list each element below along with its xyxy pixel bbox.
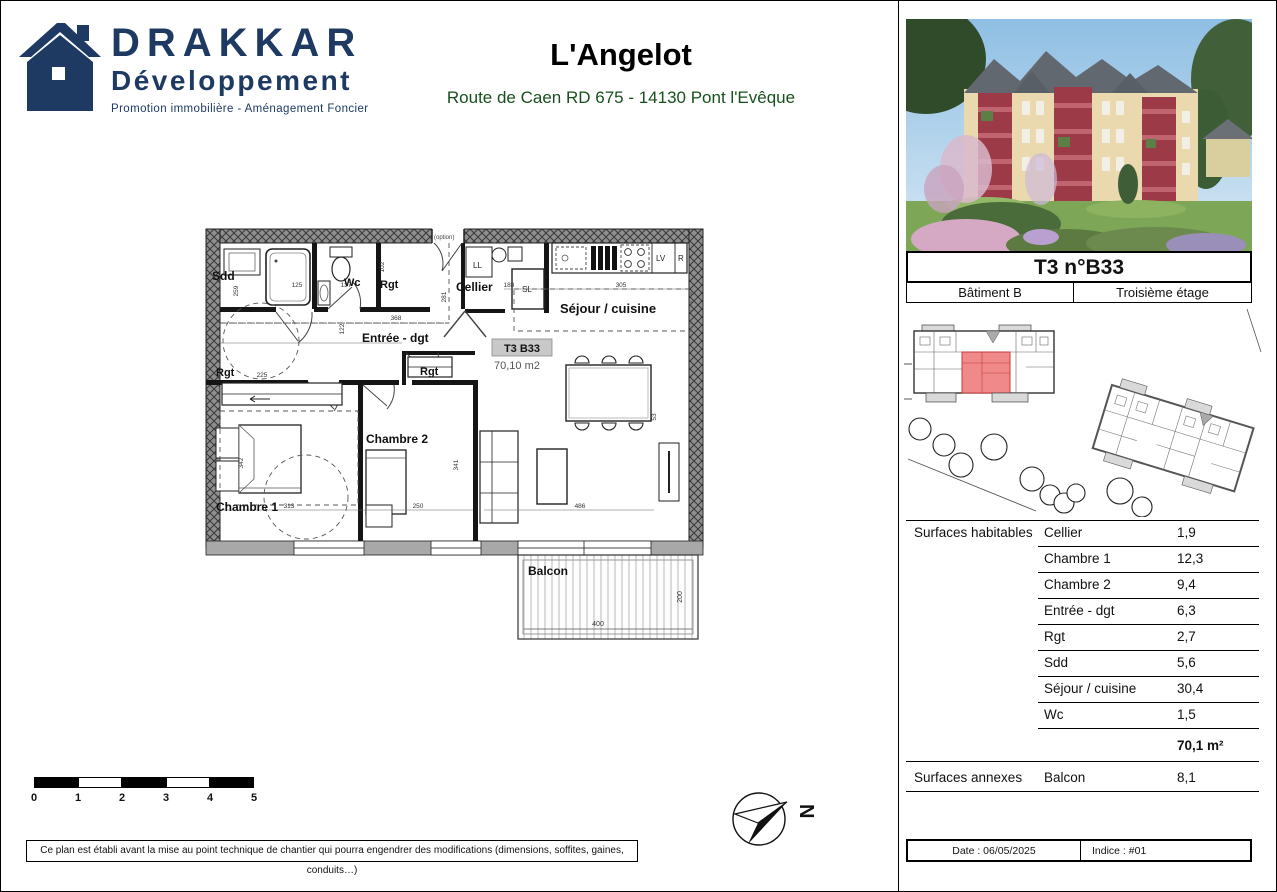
- scale-label: 3: [160, 792, 172, 804]
- room-label-sejour: Séjour / cuisine: [560, 301, 656, 316]
- surface-area: 1,9: [1177, 525, 1196, 540]
- unit-label: T3 B33: [504, 343, 540, 355]
- window: [294, 541, 364, 555]
- surface-area: 12,3: [1177, 551, 1203, 566]
- dim-125: 125: [292, 282, 303, 289]
- surface-area: 30,4: [1177, 681, 1203, 696]
- dim-341: 341: [453, 459, 460, 470]
- brand-name: DRAKKAR: [111, 23, 362, 63]
- scale-label: 5: [248, 792, 260, 804]
- dim-188: 188: [504, 282, 515, 289]
- panel-divider: [898, 1, 899, 892]
- footer-indice: Indice : #01: [1092, 841, 1252, 862]
- scale-segment: [122, 777, 166, 788]
- surfaces-annexes-label: Surfaces annexes: [914, 770, 1022, 785]
- page-title: L'Angelot: [381, 37, 861, 73]
- surfaces-habitables-label: Surfaces habitables: [914, 525, 1033, 540]
- option-note: (option): [434, 235, 454, 241]
- room-label-rgt-left: Rgt: [216, 367, 235, 379]
- plan-sheet: DRAKKAR Développement Promotion immobili…: [0, 0, 1277, 892]
- scale-bar: 0 1 2 3 4 5: [34, 777, 264, 811]
- footer-date: Date : 06/05/2025: [908, 841, 1080, 862]
- appliance-r: R: [678, 254, 684, 263]
- surface-room: Chambre 1: [1044, 551, 1111, 566]
- kitchen-counter: LV R: [552, 243, 687, 273]
- surface-room: Séjour / cuisine: [1044, 681, 1136, 696]
- surface-area: 1,5: [1177, 707, 1196, 722]
- brand-logo: DRAKKAR Développement Promotion immobili…: [19, 15, 379, 120]
- annexe-area: 8,1: [1177, 770, 1196, 785]
- dim-137: 137: [341, 282, 352, 289]
- room-label-sdd: Sdd: [212, 269, 235, 283]
- bedroom2-furniture: [366, 450, 406, 527]
- balcony: 400 200 Balcon: [518, 555, 698, 639]
- surface-area: 2,7: [1177, 629, 1196, 644]
- bathroom-fixtures: [224, 247, 352, 305]
- room-label-balcon: Balcon: [528, 564, 568, 578]
- floor-cell: Troisième étage: [1073, 282, 1252, 303]
- dim-400: 400: [592, 621, 604, 628]
- floor-plan: 400 200 Balcon: [194, 225, 716, 655]
- surface-room: Cellier: [1044, 525, 1082, 540]
- dim-281: 281: [441, 291, 448, 302]
- appliance-ll: LL: [473, 261, 482, 270]
- dim-259: 259: [233, 285, 240, 296]
- surfaces-total: 70,1 m²: [1177, 738, 1224, 753]
- room-label-chambre1: Chambre 1: [216, 500, 278, 514]
- room-label-cellier: Cellier: [456, 280, 493, 294]
- scale-label: 1: [72, 792, 84, 804]
- annexe-room: Balcon: [1044, 770, 1085, 785]
- surface-area: 5,6: [1177, 655, 1196, 670]
- closet-rgt-left: [222, 383, 342, 405]
- footer-box: Date : 06/05/2025 Indice : #01: [906, 839, 1252, 862]
- dim-200: 200: [677, 591, 684, 603]
- page-subtitle: Route de Caen RD 675 - 14130 Pont l'Evêq…: [381, 88, 861, 108]
- dim-225: 225: [257, 372, 268, 379]
- scale-segment: [166, 777, 210, 788]
- surface-room: Wc: [1044, 707, 1064, 722]
- scale-segment: [34, 777, 78, 788]
- scale-label: 4: [204, 792, 216, 804]
- dim-313: 313: [284, 503, 295, 510]
- north-letter: N: [795, 804, 816, 818]
- dim-250: 250: [413, 503, 424, 510]
- window: [431, 541, 481, 555]
- unit-tag: T3 B33 70,10 m2: [492, 339, 552, 372]
- surfaces-table: Surfaces habitables Cellier 1,9 Chambre …: [906, 520, 1259, 792]
- house-logo-icon: [19, 17, 101, 113]
- dim-305: 305: [616, 282, 627, 289]
- scale-label: 2: [116, 792, 128, 804]
- building-photo: [906, 19, 1252, 251]
- disclaimer-note: Ce plan est établi avant la mise au poin…: [26, 840, 638, 862]
- north-arrow: N: [726, 786, 816, 856]
- site-plan: [904, 307, 1264, 517]
- living-furniture: [480, 356, 679, 523]
- dim-53: 53: [651, 413, 658, 421]
- room-label-chambre2: Chambre 2: [366, 432, 428, 446]
- surface-room: Sdd: [1044, 655, 1068, 670]
- surface-area: 6,3: [1177, 603, 1196, 618]
- unit-title-box: T3 n°B33: [906, 251, 1252, 283]
- dim-368: 368: [391, 315, 402, 322]
- bedroom1-furniture: [216, 425, 301, 493]
- dim-486: 486: [575, 503, 586, 510]
- brand-division: Développement: [111, 67, 352, 95]
- bottom-facade: [206, 541, 703, 555]
- site-building-b: [914, 325, 1054, 402]
- surface-room: Rgt: [1044, 629, 1065, 644]
- brand-tagline: Promotion immobilière - Aménagement Fonc…: [111, 103, 369, 115]
- dim-122: 122: [339, 323, 346, 334]
- surface-room: Entrée - dgt: [1044, 603, 1115, 618]
- scale-label: 0: [28, 792, 40, 804]
- unit-area: 70,10 m2: [494, 360, 540, 372]
- balcony-door: [518, 541, 651, 555]
- room-label-rgt-top: Rgt: [380, 279, 399, 291]
- surface-room: Chambre 2: [1044, 577, 1111, 592]
- dim-342: 342: [238, 457, 245, 468]
- appliance-sl: SL: [522, 285, 532, 294]
- scale-segment: [210, 777, 254, 788]
- room-label-rgt-mid: Rgt: [420, 366, 439, 378]
- scale-segment: [78, 777, 122, 788]
- appliance-lv: LV: [656, 254, 666, 263]
- cellier-fixtures: LL SL: [466, 247, 544, 309]
- room-label-entree: Entrée - dgt: [362, 331, 429, 345]
- surface-area: 9,4: [1177, 577, 1196, 592]
- building-cell: Bâtiment B: [906, 282, 1074, 303]
- dim-102: 102: [379, 261, 386, 272]
